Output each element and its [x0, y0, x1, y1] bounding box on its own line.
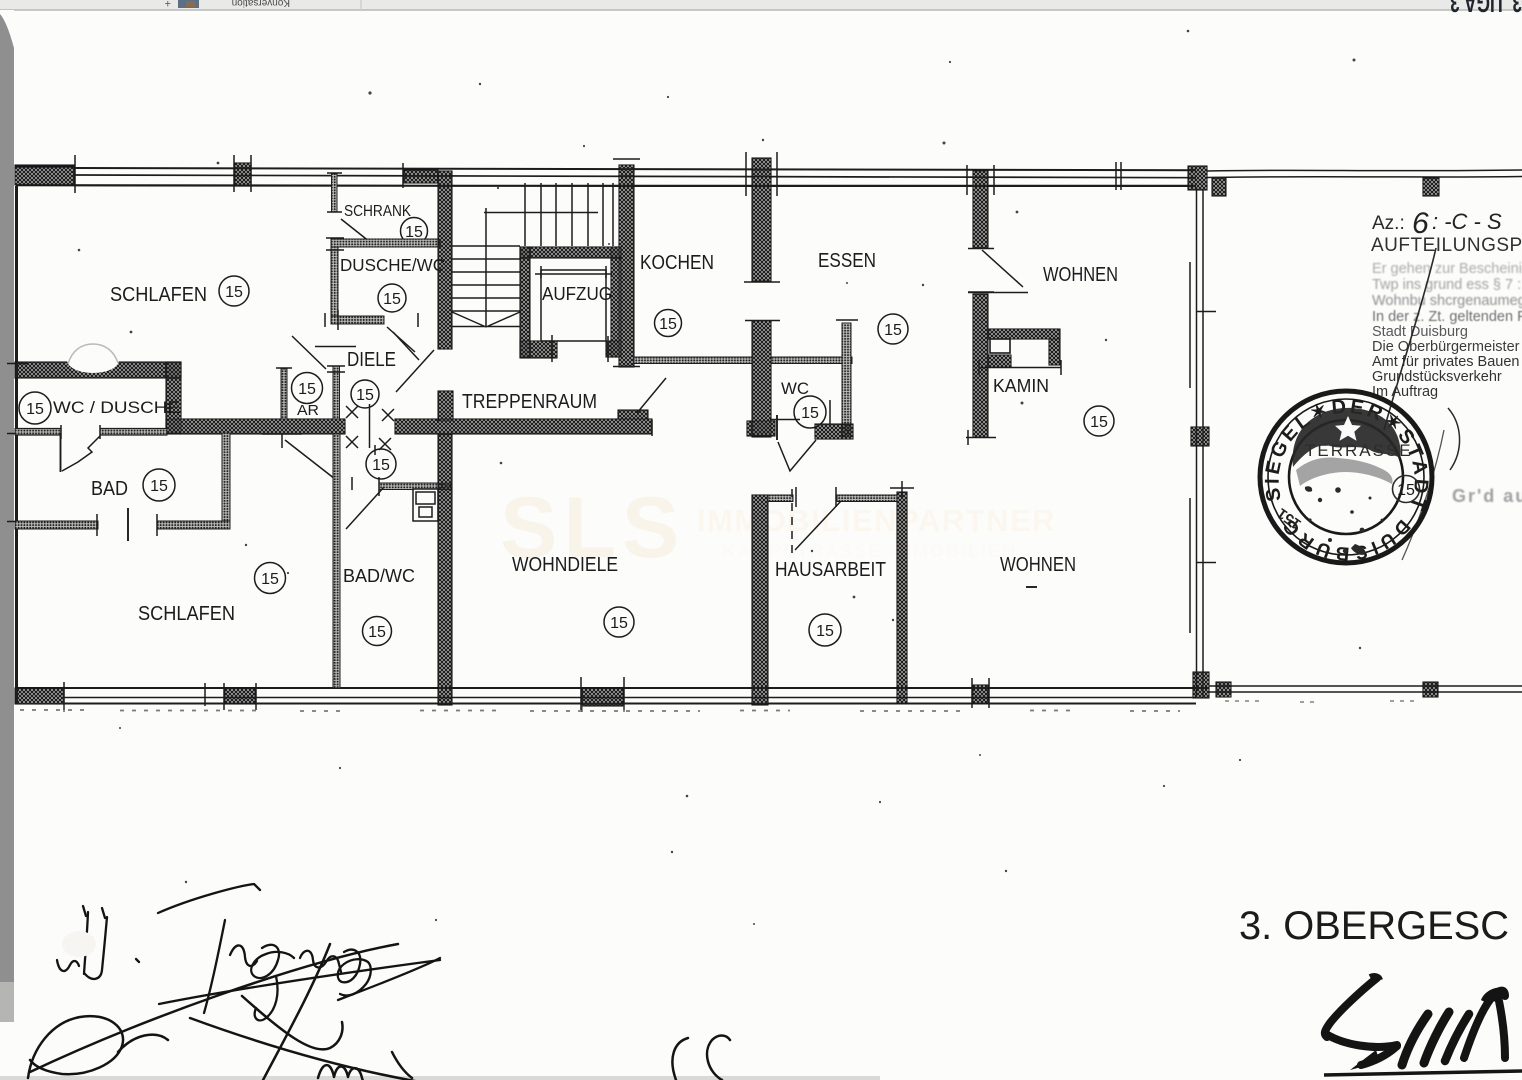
svg-text:TERRASSE: TERRASSE	[1305, 441, 1413, 460]
svg-text:Twp ins grund ess § 7 :: Twp ins grund ess § 7 :	[1372, 277, 1521, 293]
svg-text:DIELE: DIELE	[347, 349, 396, 371]
svg-text:15: 15	[884, 322, 902, 339]
svg-text:AUFZUG: AUFZUG	[542, 284, 612, 304]
svg-text:KAMIN: KAMIN	[993, 375, 1049, 396]
svg-text:15: 15	[659, 316, 677, 333]
svg-text:15: 15	[150, 478, 168, 495]
svg-text:AR: AR	[297, 402, 319, 419]
svg-text:15: 15	[368, 624, 386, 641]
svg-text:IMMOBILIENPARTNER: IMMOBILIENPARTNER	[697, 503, 1056, 538]
svg-text:WOHNEN: WOHNEN	[1043, 264, 1118, 286]
svg-text:15: 15	[298, 381, 316, 398]
svg-text:Gr'd au: Gr'd au	[1452, 486, 1522, 506]
svg-text:BAD/WC: BAD/WC	[343, 565, 415, 586]
svg-text:15: 15	[383, 291, 401, 308]
svg-text:3. OBERGESC: 3. OBERGESC	[1239, 904, 1509, 948]
svg-text:Wohnbu shcrgenaumege: Wohnbu shcrgenaumege	[1372, 293, 1522, 309]
svg-text:Az.:: Az.:	[1372, 213, 1405, 234]
svg-text:Er gehen zur Bescheini: Er gehen zur Bescheini	[1372, 261, 1522, 277]
svg-text:HAUSARBEIT: HAUSARBEIT	[775, 559, 886, 581]
svg-text:Konversation: Konversation	[232, 0, 290, 8]
svg-text:15: 15	[801, 405, 819, 422]
svg-text:: -C - S: : -C - S	[1432, 209, 1502, 234]
svg-text:In der z. Zt. geltenden F: In der z. Zt. geltenden F	[1372, 309, 1522, 325]
svg-text:15: 15	[1397, 482, 1415, 499]
svg-text:Amt für privates Bauen: Amt für privates Bauen	[1372, 354, 1520, 370]
svg-text:SCHRANK: SCHRANK	[344, 203, 412, 220]
svg-text:15: 15	[1090, 414, 1108, 431]
svg-text:15: 15	[26, 401, 44, 418]
svg-text:WOHNEN: WOHNEN	[1000, 554, 1076, 576]
svg-text:15: 15	[372, 457, 390, 474]
svg-text:Grundstücksverkehr: Grundstücksverkehr	[1372, 369, 1502, 385]
svg-text:TREPPENRAUM: TREPPENRAUM	[462, 391, 597, 413]
svg-text:15: 15	[356, 387, 374, 404]
svg-text:BAD: BAD	[91, 478, 128, 500]
svg-text:WC / DUSCHE: WC / DUSCHE	[53, 398, 180, 417]
svg-text:DUSCHE/WC: DUSCHE/WC	[340, 255, 445, 275]
svg-text:SCHLAFEN: SCHLAFEN	[138, 603, 235, 625]
svg-text:Stadt Duisburg: Stadt Duisburg	[1372, 324, 1468, 340]
svg-text:WOHNDIELE: WOHNDIELE	[512, 554, 618, 576]
svg-text:15: 15	[225, 284, 243, 301]
svg-text:SCHLAFEN: SCHLAFEN	[110, 284, 207, 306]
svg-text:15: 15	[405, 224, 423, 241]
svg-text:3. UGA 3: 3. UGA 3	[1450, 0, 1522, 18]
svg-text:ESSEN: ESSEN	[818, 250, 876, 272]
svg-text:15: 15	[816, 623, 834, 640]
svg-text:15: 15	[610, 615, 628, 632]
svg-text:Die Oberbürgermeister: Die Oberbürgermeister	[1372, 339, 1520, 355]
svg-text:+: +	[165, 0, 171, 9]
svg-text:AUFTEILUNGSP: AUFTEILUNGSP	[1371, 235, 1522, 256]
svg-text:KOCHEN: KOCHEN	[640, 252, 714, 274]
svg-text:15: 15	[261, 571, 279, 588]
svg-text:WC: WC	[781, 379, 809, 398]
